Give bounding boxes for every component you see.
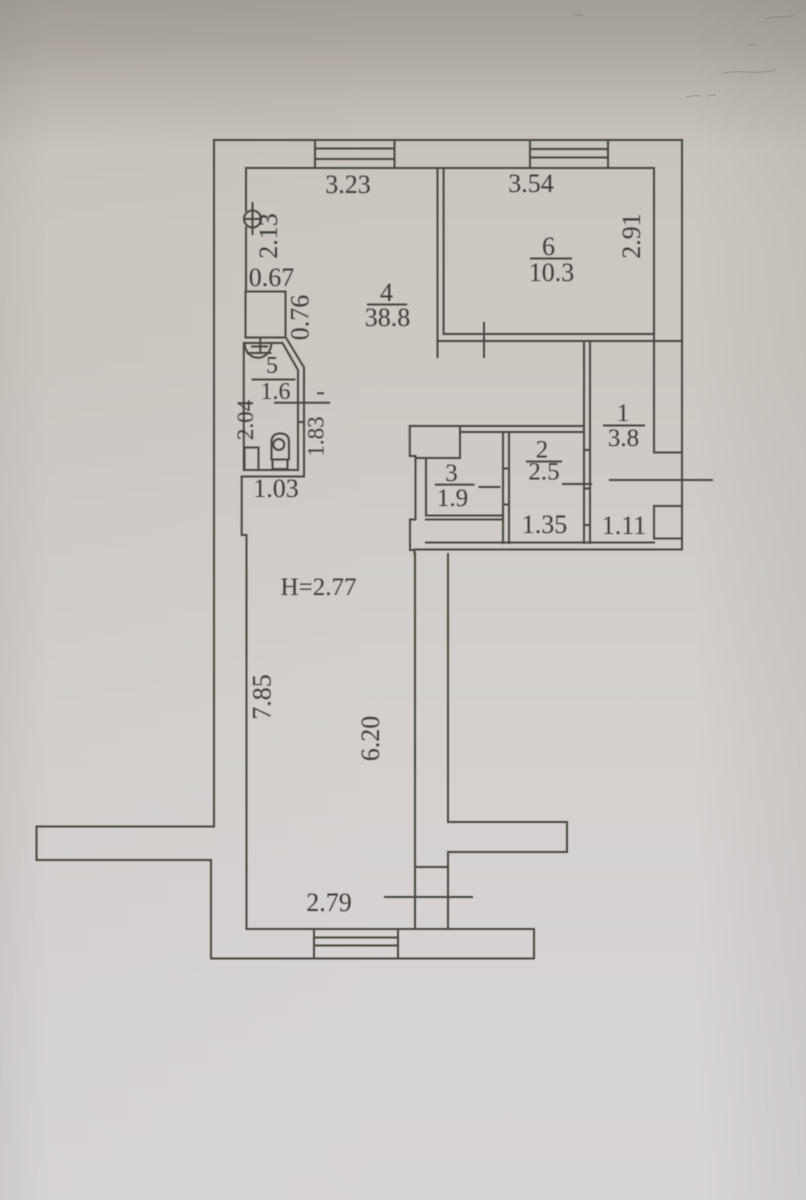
svg-text:3.54: 3.54 <box>508 169 554 198</box>
svg-text:1: 1 <box>617 400 630 427</box>
svg-text:1.83: 1.83 <box>304 416 329 456</box>
svg-text:2.13: 2.13 <box>254 213 283 259</box>
svg-text:1.9: 1.9 <box>437 485 468 512</box>
svg-text:0.76: 0.76 <box>286 295 315 341</box>
svg-text:0.67: 0.67 <box>249 263 295 292</box>
svg-text:2.79: 2.79 <box>306 888 352 917</box>
svg-text:38.8: 38.8 <box>365 303 411 332</box>
svg-text:1.35: 1.35 <box>522 510 568 539</box>
svg-text:1.11: 1.11 <box>602 511 647 540</box>
svg-text:5: 5 <box>266 353 278 379</box>
svg-text:2.04: 2.04 <box>233 399 258 440</box>
svg-text:10.3: 10.3 <box>529 258 575 287</box>
svg-text:2.5: 2.5 <box>528 459 559 486</box>
svg-text:2.91: 2.91 <box>617 213 646 259</box>
svg-text:1.6: 1.6 <box>261 379 291 405</box>
svg-text:3.8: 3.8 <box>608 425 639 452</box>
svg-text:H=2.77: H=2.77 <box>281 574 357 601</box>
svg-text:6: 6 <box>542 232 555 261</box>
svg-text:3.23: 3.23 <box>325 170 371 199</box>
svg-text:3: 3 <box>445 460 458 487</box>
svg-text:7.85: 7.85 <box>248 674 277 720</box>
svg-text:6.20: 6.20 <box>356 716 385 762</box>
svg-text:1.03: 1.03 <box>253 474 299 503</box>
